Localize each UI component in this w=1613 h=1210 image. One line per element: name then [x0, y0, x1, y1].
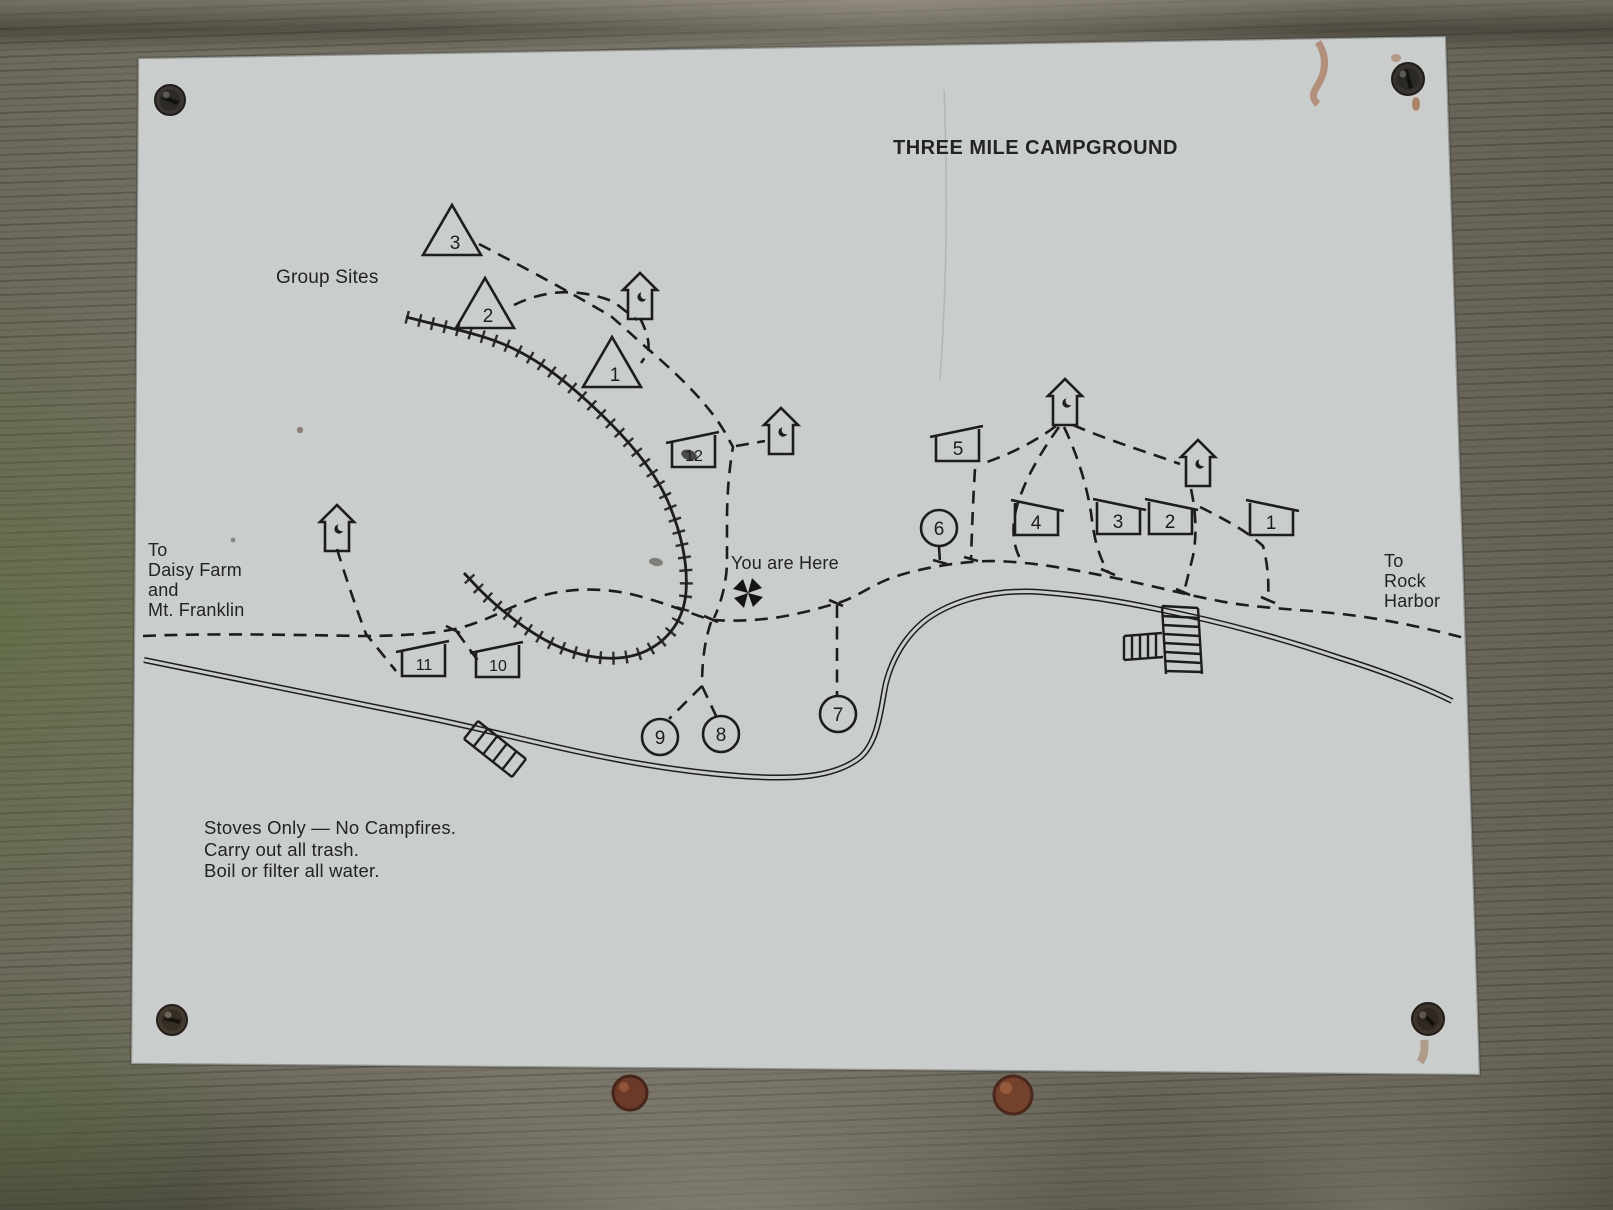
shoreline	[144, 592, 1452, 778]
site-number: 12	[685, 448, 703, 465]
stem-outhouse-east	[1184, 489, 1195, 592]
site-number: 7	[833, 705, 844, 726]
site-number: 6	[934, 519, 945, 540]
spur-outhouse-group	[640, 318, 649, 363]
scuff-marks	[231, 90, 947, 567]
destination-rock-harbor-label: To Rock Harbor	[1384, 551, 1440, 611]
crescent-moon-cutout	[1066, 397, 1074, 405]
site-number: 2	[1165, 512, 1176, 533]
site-number: 3	[1113, 512, 1124, 533]
embankment-hachure	[406, 317, 686, 658]
trail-dashed-paths	[143, 244, 1468, 719]
spur-outhouse-to-5	[971, 426, 1056, 559]
group-sites-label: Group Sites	[276, 268, 379, 288]
site-markers: 321121110543216987	[320, 205, 1299, 755]
site-number: 9	[655, 728, 666, 749]
map-title: THREE MILE CAMPGROUND	[893, 138, 1178, 158]
spur-sites-8-9	[669, 622, 717, 719]
site-number: 1	[1266, 513, 1277, 534]
trail-junction-ticks	[446, 557, 1275, 633]
you-are-here-marker	[733, 578, 763, 608]
site-number: 5	[953, 439, 964, 460]
branch-outhouse-12	[736, 441, 765, 446]
site-number: 11	[416, 657, 433, 674]
destination-daisy-farm-label: To Daisy Farm and Mt. Franklin	[148, 540, 244, 620]
photo-of-campground-sign: 321121110543216987 THREE MILE CAMPGROUND…	[0, 0, 1613, 1210]
site-number: 10	[489, 658, 507, 675]
nail-head	[613, 1076, 1032, 1114]
site-number: 4	[1031, 513, 1042, 534]
site-number: 2	[483, 306, 494, 327]
crescent-moon-cutout	[338, 523, 346, 531]
you-are-here-label: You are Here	[731, 553, 839, 573]
site-number: 3	[450, 233, 461, 254]
spur-site-1	[1200, 507, 1268, 600]
stem-site-6	[939, 547, 940, 562]
site-number: 8	[716, 725, 727, 746]
crescent-moon-cutout	[641, 291, 649, 299]
spur-outhouse-west	[337, 549, 396, 671]
spur-outhouse-to-outhouse	[1073, 425, 1180, 464]
crescent-moon-cutout	[1199, 458, 1207, 466]
crescent-moon-cutout	[782, 426, 790, 434]
spur-west-of-4	[1013, 427, 1059, 562]
site-number: 1	[610, 365, 621, 386]
rules-text: Stoves Only — No Campfires. Carry out al…	[204, 817, 456, 882]
